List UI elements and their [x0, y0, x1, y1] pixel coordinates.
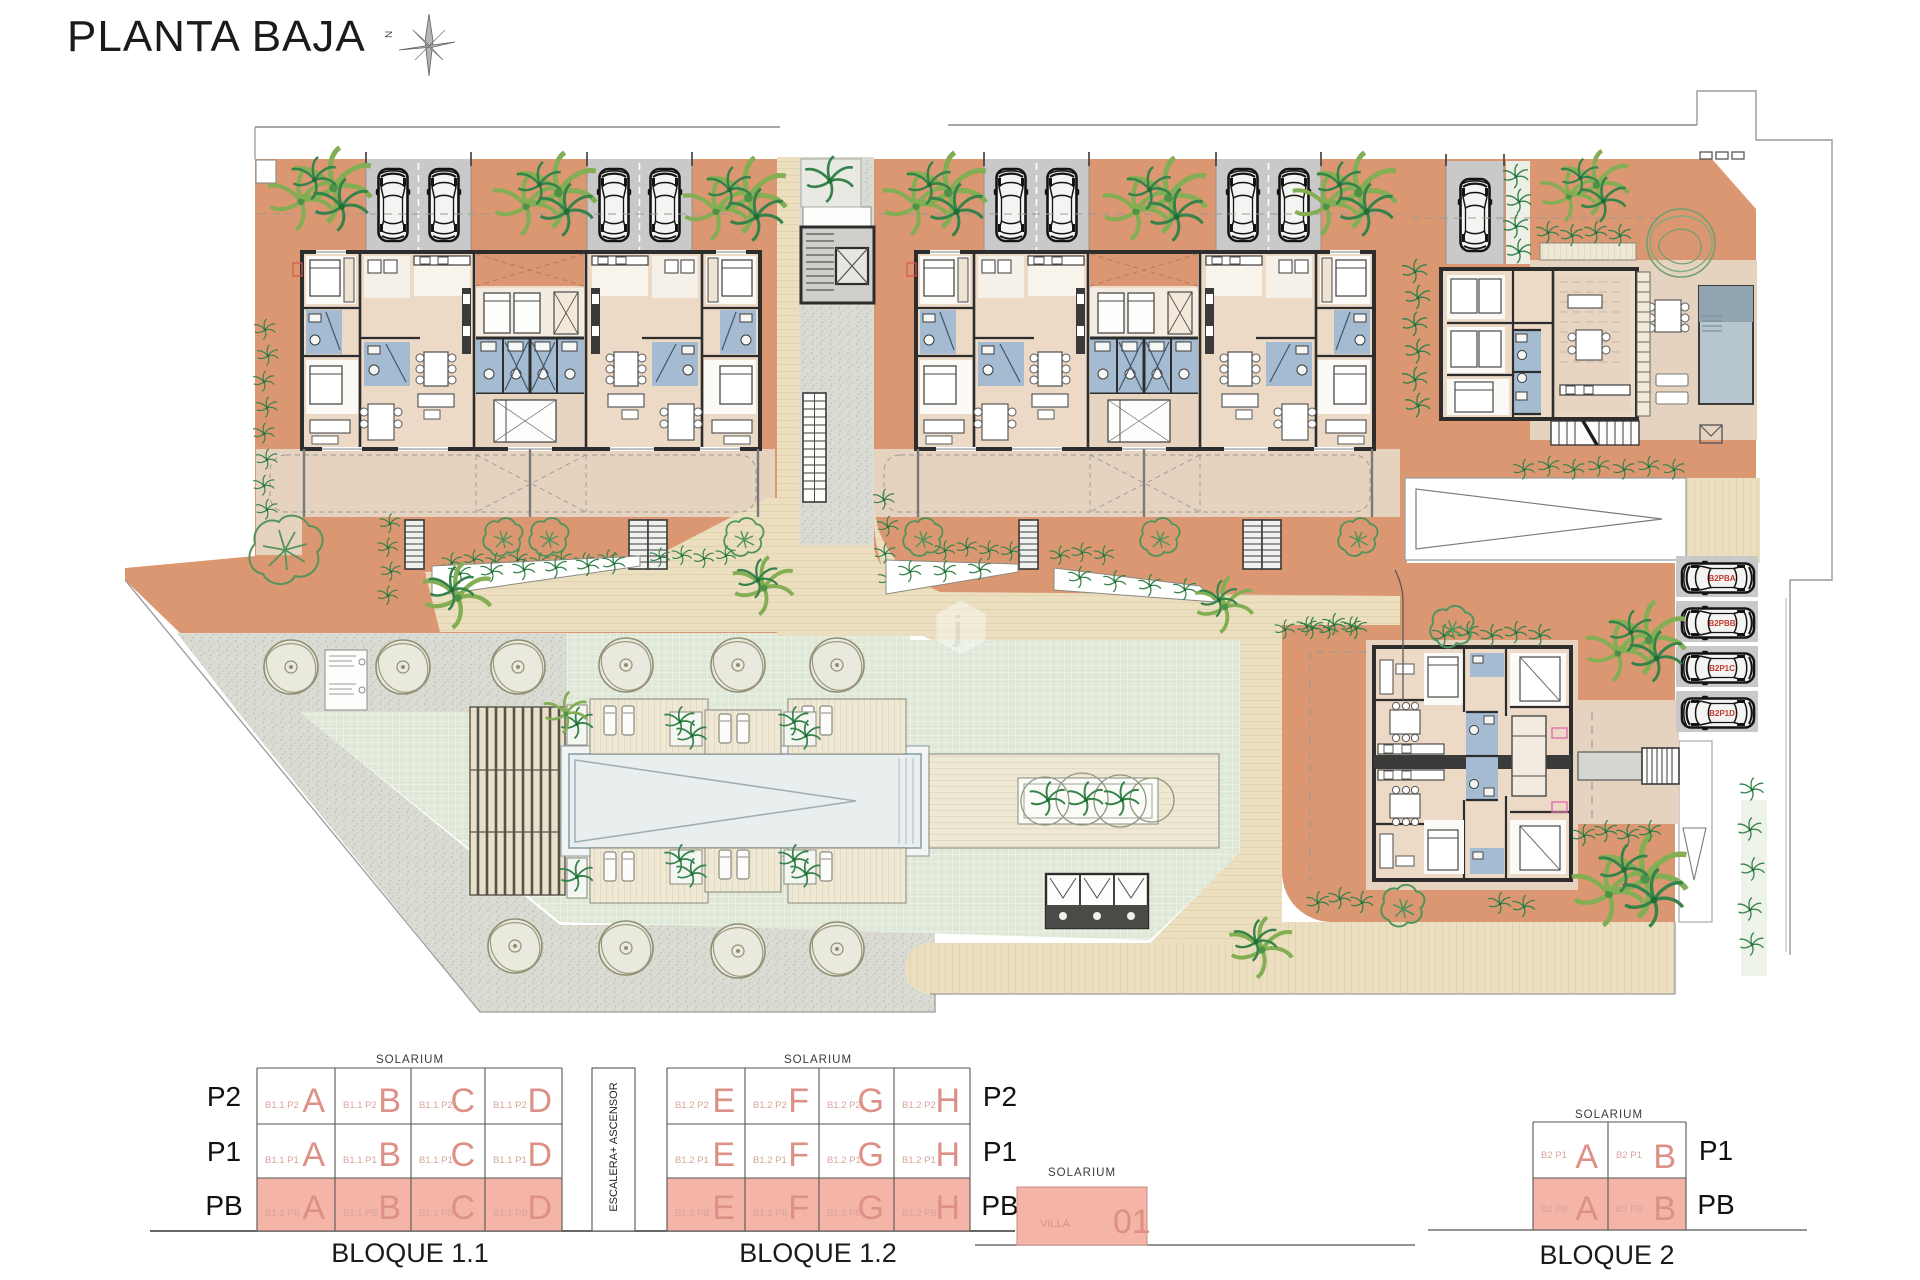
- svg-text:B2 PB: B2 PB: [1541, 1204, 1568, 1215]
- svg-text:P1: P1: [207, 1136, 241, 1167]
- svg-text:P2: P2: [983, 1081, 1017, 1112]
- svg-text:B1.1 P1: B1.1 P1: [493, 1155, 527, 1166]
- svg-text:B1.1 P1: B1.1 P1: [265, 1155, 299, 1166]
- svg-text:B2PBB: B2PBB: [1708, 619, 1735, 628]
- svg-text:BLOQUE 2: BLOQUE 2: [1539, 1240, 1674, 1270]
- svg-text:SOLARIUM: SOLARIUM: [376, 1054, 444, 1066]
- svg-text:B1.2 P2: B1.2 P2: [827, 1100, 861, 1111]
- svg-text:B: B: [1653, 1190, 1676, 1228]
- svg-text:B2 P1: B2 P1: [1616, 1150, 1642, 1161]
- svg-text:SOLARIUM: SOLARIUM: [784, 1054, 852, 1066]
- svg-text:E: E: [712, 1189, 735, 1227]
- svg-text:B2PBA: B2PBA: [1708, 574, 1735, 583]
- svg-text:PB: PB: [1697, 1189, 1734, 1220]
- svg-text:BLOQUE 1.2: BLOQUE 1.2: [739, 1238, 897, 1268]
- svg-text:P1: P1: [983, 1136, 1017, 1167]
- svg-text:F: F: [788, 1189, 809, 1227]
- svg-text:G: G: [858, 1082, 884, 1120]
- svg-text:P2: P2: [207, 1081, 241, 1112]
- svg-text:B1.1 P1: B1.1 P1: [343, 1155, 377, 1166]
- svg-text:j: j: [952, 610, 962, 648]
- svg-text:SOLARIUM: SOLARIUM: [1048, 1167, 1116, 1179]
- svg-text:B1.1 P2: B1.1 P2: [343, 1100, 377, 1111]
- svg-text:N: N: [384, 31, 395, 38]
- svg-text:C: C: [450, 1082, 475, 1120]
- svg-text:B1.2 P1: B1.2 P1: [753, 1155, 787, 1166]
- svg-text:G: G: [858, 1136, 884, 1174]
- svg-text:F: F: [788, 1082, 809, 1120]
- svg-text:B1.1 PB: B1.1 PB: [493, 1208, 528, 1219]
- svg-text:B1.2 P1: B1.2 P1: [675, 1155, 709, 1166]
- svg-text:B: B: [378, 1189, 401, 1227]
- svg-text:C: C: [450, 1189, 475, 1227]
- svg-text:B1.1 P1: B1.1 P1: [419, 1155, 453, 1166]
- svg-text:B1.1 P2: B1.1 P2: [493, 1100, 527, 1111]
- svg-text:B1.2 PB: B1.2 PB: [902, 1208, 937, 1219]
- svg-text:B1.1 PB: B1.1 PB: [343, 1208, 378, 1219]
- svg-text:P1: P1: [1699, 1135, 1733, 1166]
- svg-text:PB: PB: [205, 1190, 242, 1221]
- svg-text:B: B: [378, 1082, 401, 1120]
- svg-text:PB: PB: [981, 1190, 1018, 1221]
- svg-text:B1.1 P2: B1.1 P2: [265, 1100, 299, 1111]
- svg-text:A: A: [1575, 1190, 1598, 1228]
- svg-text:B: B: [1653, 1138, 1676, 1176]
- svg-text:H: H: [935, 1189, 960, 1227]
- svg-text:B1.1 PB: B1.1 PB: [419, 1208, 454, 1219]
- svg-text:VILLA: VILLA: [1040, 1218, 1071, 1230]
- svg-text:ESCALERA+ ASCENSOR: ESCALERA+ ASCENSOR: [608, 1082, 620, 1211]
- svg-text:B2P1D: B2P1D: [1709, 709, 1735, 718]
- svg-text:SOLARIUM: SOLARIUM: [1575, 1109, 1643, 1121]
- svg-text:B2P1C: B2P1C: [1709, 664, 1735, 673]
- svg-text:D: D: [527, 1189, 552, 1227]
- svg-text:B1.2 PB: B1.2 PB: [753, 1208, 788, 1219]
- svg-text:B1.2 P2: B1.2 P2: [753, 1100, 787, 1111]
- svg-text:B1.2 P2: B1.2 P2: [902, 1100, 936, 1111]
- svg-text:B1.2 P1: B1.2 P1: [902, 1155, 936, 1166]
- svg-text:B: B: [378, 1136, 401, 1174]
- svg-text:D: D: [527, 1136, 552, 1174]
- svg-text:BLOQUE 1.1: BLOQUE 1.1: [331, 1238, 489, 1268]
- svg-text:A: A: [1575, 1138, 1598, 1176]
- svg-text:A: A: [302, 1189, 325, 1227]
- svg-text:A: A: [302, 1082, 325, 1120]
- svg-text:E: E: [712, 1136, 735, 1174]
- svg-text:F: F: [788, 1136, 809, 1174]
- svg-text:B1.1 PB: B1.1 PB: [265, 1208, 300, 1219]
- svg-text:B1.1 P2: B1.1 P2: [419, 1100, 453, 1111]
- svg-text:D: D: [527, 1082, 552, 1120]
- svg-text:E: E: [712, 1082, 735, 1120]
- svg-text:B2 PB: B2 PB: [1616, 1204, 1643, 1215]
- svg-text:C: C: [450, 1136, 475, 1174]
- svg-text:B1.2 P1: B1.2 P1: [827, 1155, 861, 1166]
- svg-text:A: A: [302, 1136, 325, 1174]
- svg-text:H: H: [935, 1082, 960, 1120]
- svg-text:B1.2 PB: B1.2 PB: [675, 1208, 710, 1219]
- svg-text:PLANTA BAJA: PLANTA BAJA: [67, 12, 366, 61]
- svg-text:H: H: [935, 1136, 960, 1174]
- svg-text:B1.2 P2: B1.2 P2: [675, 1100, 709, 1111]
- svg-text:01: 01: [1113, 1203, 1151, 1241]
- svg-text:B2 P1: B2 P1: [1541, 1150, 1567, 1161]
- svg-text:G: G: [858, 1189, 884, 1227]
